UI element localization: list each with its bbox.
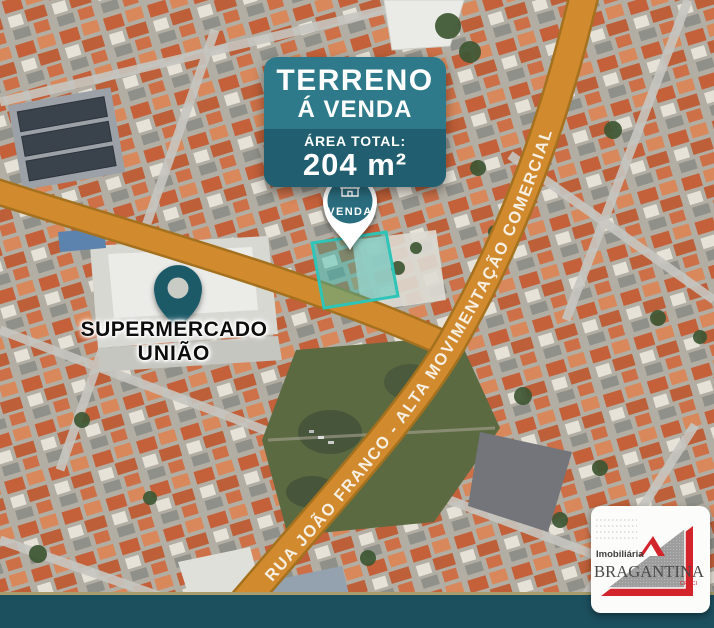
venda-pin-label: VENDA bbox=[327, 206, 373, 218]
supermarket-label: SUPERMERCADO UNIÃO bbox=[62, 318, 286, 365]
logo-registry-text: CRECI bbox=[680, 581, 698, 587]
logo-dotted-lines bbox=[596, 520, 637, 538]
sale-banner: TERRENO Á VENDA ÁREA TOTAL: 204 m² bbox=[264, 57, 446, 187]
agency-logo: Imobiliária BRAGANTINA CRECI bbox=[591, 506, 710, 613]
banner-subtitle: Á VENDA bbox=[268, 97, 442, 123]
banner-title: TERRENO bbox=[268, 66, 442, 97]
banner-area-value: 204 m² bbox=[266, 149, 444, 181]
flyer-canvas: RUA JOÃO FRANCO - ALTA MOVIMENTAÇÃO COME… bbox=[0, 0, 714, 628]
banner-area-panel: ÁREA TOTAL: 204 m² bbox=[264, 129, 446, 188]
agency-logo-art: Imobiliária BRAGANTINA CRECI bbox=[591, 506, 710, 613]
logo-name-text: BRAGANTINA bbox=[594, 562, 705, 581]
logo-sector-text: Imobiliária bbox=[596, 549, 644, 560]
supermarket-label-line2: UNIÃO bbox=[62, 342, 286, 366]
terreno-lot bbox=[312, 232, 398, 308]
supermarket-label-line1: SUPERMERCADO bbox=[62, 318, 286, 342]
supermarket-pin-hole bbox=[168, 278, 189, 299]
banner-main: TERRENO Á VENDA bbox=[264, 57, 446, 129]
solar-panels bbox=[8, 87, 125, 190]
